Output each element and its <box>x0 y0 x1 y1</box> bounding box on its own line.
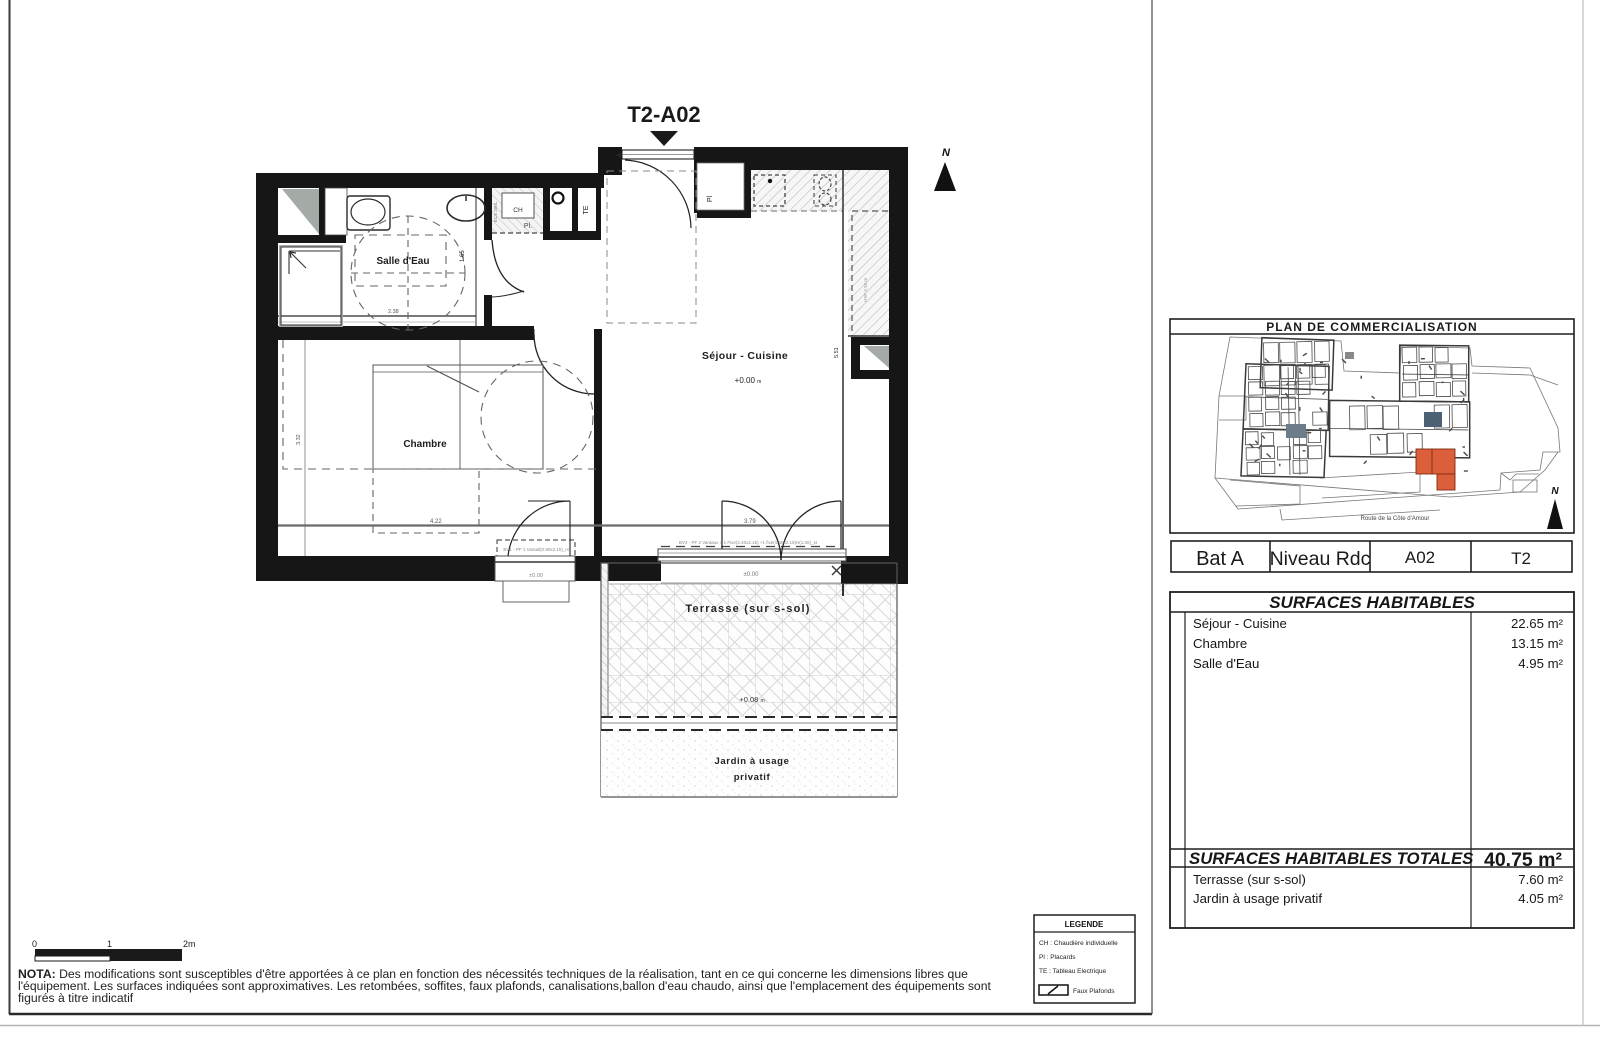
svg-text:HSP 2.50 m: HSP 2.50 m <box>863 278 868 302</box>
svg-text:Pl : Placards: Pl : Placards <box>1039 954 1076 961</box>
svg-text:Faux Plafonds: Faux Plafonds <box>1073 988 1115 995</box>
svg-text:22.65 m²: 22.65 m² <box>1511 616 1564 631</box>
svg-text:privatif: privatif <box>734 772 771 783</box>
svg-text:Salle d'Eau: Salle d'Eau <box>1193 656 1259 671</box>
svg-text:BV4 - PF 2 Vantaux + 1 Fixe(2.: BV4 - PF 2 Vantaux + 1 Fixe(2.40x2.15) +… <box>679 540 818 545</box>
svg-text:CH: CH <box>513 207 523 214</box>
svg-text:Bat A: Bat A <box>1196 548 1244 570</box>
svg-text:3.79: 3.79 <box>744 519 756 525</box>
svg-text:CH : Chaudière individuelle: CH : Chaudière individuelle <box>1039 940 1118 947</box>
svg-text:±0.00: ±0.00 <box>744 572 760 578</box>
svg-text:7.60 m²: 7.60 m² <box>1518 872 1563 887</box>
svg-text:T2: T2 <box>1511 549 1531 568</box>
svg-text:Route de la Côte d'Amour: Route de la Côte d'Amour <box>1361 516 1430 522</box>
svg-text:4.22: 4.22 <box>430 519 442 525</box>
svg-text:TE: TE <box>583 205 590 214</box>
svg-text:1: 1 <box>107 939 112 949</box>
svg-text:PLAN DE COMMERCIALISATION: PLAN DE COMMERCIALISATION <box>1266 320 1477 334</box>
svg-text:N: N <box>1551 486 1559 497</box>
svg-text:±0.00: ±0.00 <box>529 573 543 579</box>
svg-text:4.05 m²: 4.05 m² <box>1518 891 1563 906</box>
svg-text:TE : Tableau Electrique: TE : Tableau Electrique <box>1039 968 1106 975</box>
svg-text:40.75 m²: 40.75 m² <box>1484 849 1563 871</box>
svg-text:2m: 2m <box>183 939 196 949</box>
svg-text:Séjour - Cuisine: Séjour - Cuisine <box>702 350 788 362</box>
svg-text:l'équipement. Les surfaces ind: l'équipement. Les surfaces indiquées son… <box>18 979 991 993</box>
svg-text:Séjour - Cuisine: Séjour - Cuisine <box>1193 616 1287 631</box>
svg-text:3.32: 3.32 <box>296 434 302 445</box>
svg-text:5.51: 5.51 <box>834 347 840 358</box>
svg-text:0: 0 <box>32 939 37 949</box>
svg-text:Pl: Pl <box>707 195 714 202</box>
svg-text:T2-A02: T2-A02 <box>627 102 700 127</box>
svg-text:SURFACES HABITABLES: SURFACES HABITABLES <box>1269 593 1475 612</box>
svg-text:SURFACES HABITABLES TOTALES: SURFACES HABITABLES TOTALES <box>1189 849 1474 868</box>
svg-text:4.95 m²: 4.95 m² <box>1518 656 1563 671</box>
svg-text:13.15 m²: 13.15 m² <box>1511 636 1564 651</box>
svg-text:Jardin à usage: Jardin à usage <box>715 756 790 767</box>
svg-text:BV1 - PF 1 Vantail(0.90x2.15)_: BV1 - PF 1 Vantail(0.90x2.15)_H <box>503 547 568 552</box>
svg-text:2.38: 2.38 <box>388 309 399 315</box>
svg-text:Salle d'Eau: Salle d'Eau <box>377 256 430 267</box>
svg-text:Niveau Rdc: Niveau Rdc <box>1270 548 1371 570</box>
svg-text:Terrasse (sur s-sol): Terrasse (sur s-sol) <box>685 603 810 615</box>
svg-text:figurés à titre indicatif: figurés à titre indicatif <box>18 991 134 1005</box>
svg-text:A02: A02 <box>1405 548 1435 567</box>
svg-text:ECS 200L: ECS 200L <box>493 201 498 222</box>
svg-text:N: N <box>942 147 951 159</box>
svg-text:Chambre: Chambre <box>1193 636 1247 651</box>
svg-text:Chambre: Chambre <box>403 439 447 450</box>
svg-text:LEGENDE: LEGENDE <box>1065 920 1104 929</box>
svg-text:Terrasse (sur s-sol): Terrasse (sur s-sol) <box>1193 872 1306 887</box>
svg-text:Jardin à usage privatif: Jardin à usage privatif <box>1193 891 1322 906</box>
svg-text:1.65: 1.65 <box>460 250 466 262</box>
svg-text:Pl.: Pl. <box>524 223 532 230</box>
